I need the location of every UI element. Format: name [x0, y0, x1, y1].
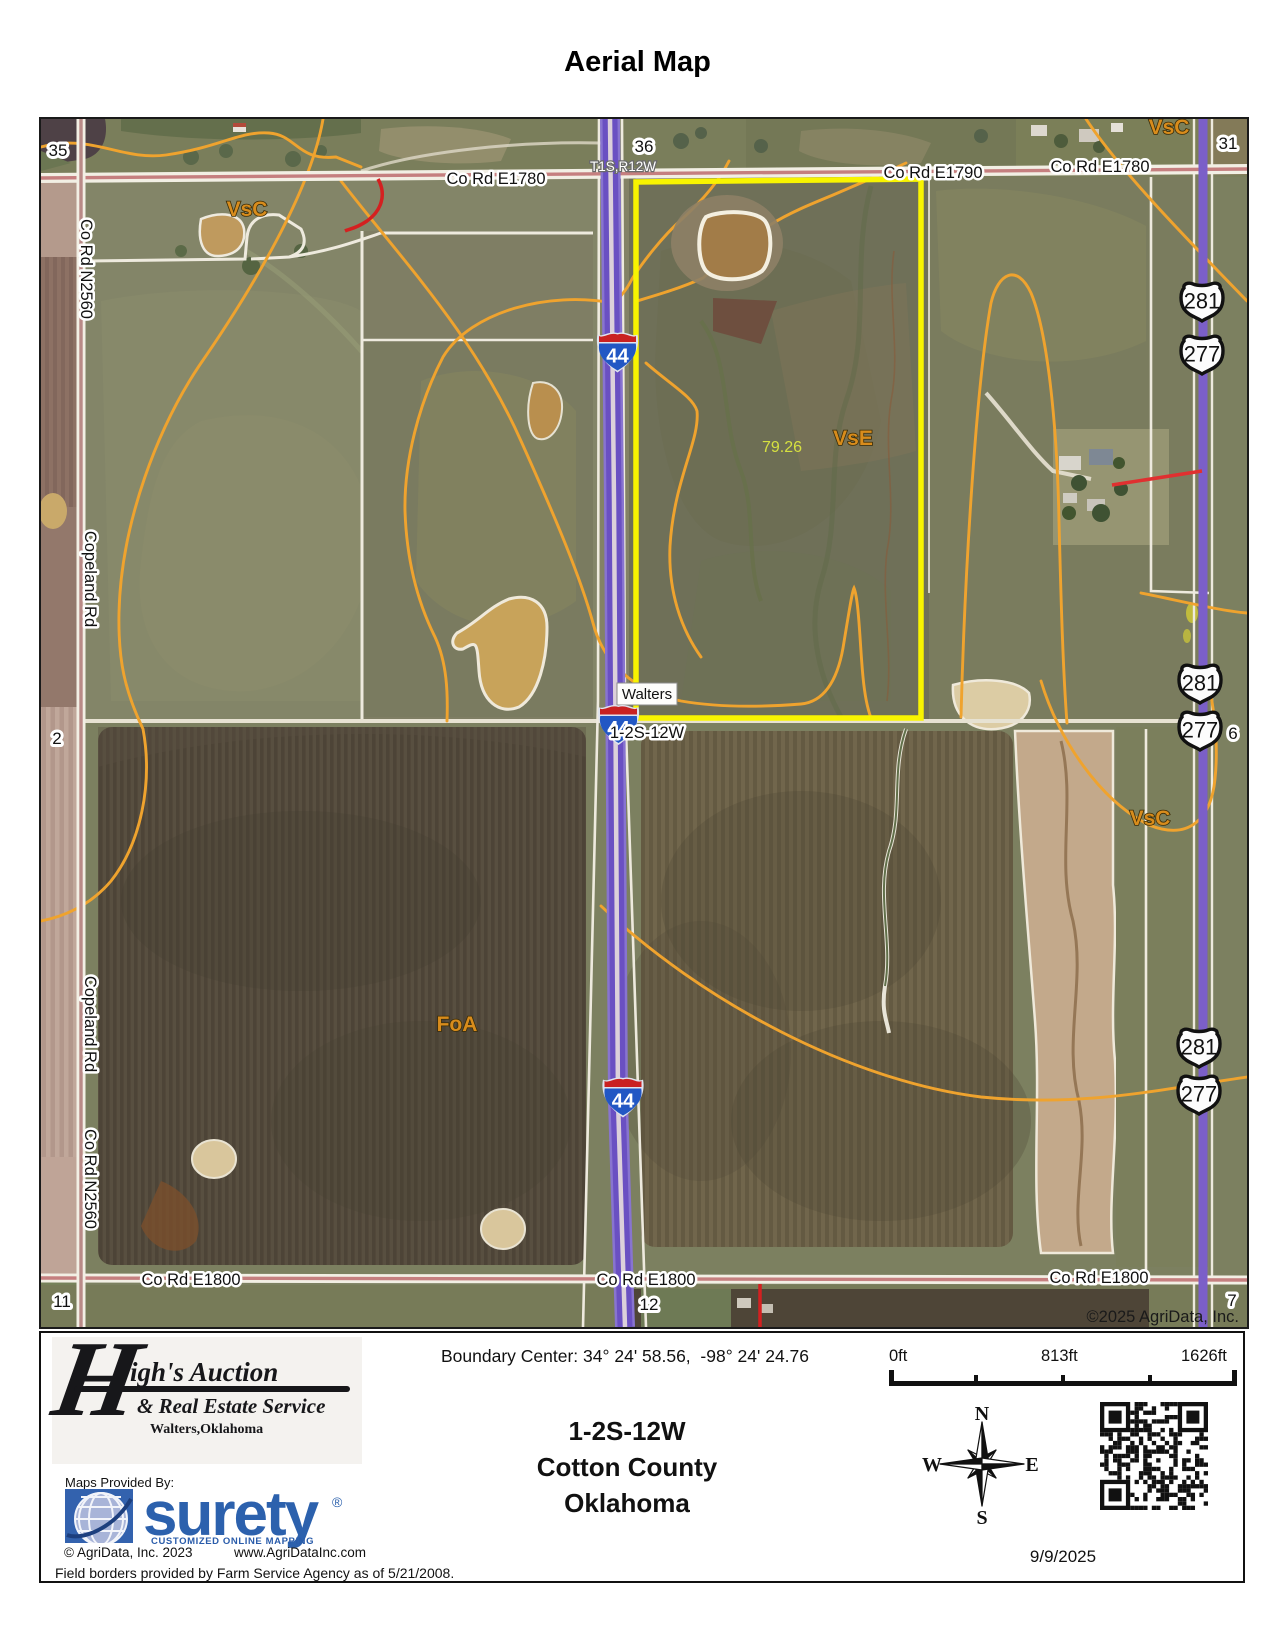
- svg-text:44: 44: [606, 345, 629, 367]
- svg-text:Co Rd E1780: Co Rd E1780: [1050, 158, 1149, 176]
- svg-text:VsE: VsE: [833, 427, 873, 450]
- svg-text:Co Rd E1800: Co Rd E1800: [141, 1271, 240, 1289]
- svg-text:W: W: [922, 1454, 942, 1476]
- svg-text:S: S: [976, 1507, 987, 1528]
- svg-text:VsC: VsC: [1149, 117, 1190, 139]
- svg-text:1-2S-12W: 1-2S-12W: [610, 724, 685, 742]
- svg-text:6: 6: [1228, 724, 1237, 743]
- svg-text:FoA: FoA: [437, 1013, 478, 1036]
- svg-text:44: 44: [612, 1090, 635, 1112]
- svg-text:12: 12: [640, 1295, 659, 1314]
- svg-text:Co Rd N2560: Co Rd N2560: [77, 219, 95, 319]
- svg-text:Copeland Rd: Copeland Rd: [81, 531, 99, 627]
- svg-text:Co Rd E1790: Co Rd E1790: [883, 164, 982, 182]
- svg-text:277: 277: [1184, 342, 1220, 367]
- svg-text:31: 31: [1219, 134, 1238, 153]
- svg-text:T1S,R12W: T1S,R12W: [590, 159, 656, 174]
- svg-text:281: 281: [1184, 289, 1220, 314]
- svg-text:Co Rd E1800: Co Rd E1800: [596, 1271, 695, 1289]
- svg-text:277: 277: [1181, 1082, 1217, 1107]
- svg-text:35: 35: [49, 141, 68, 160]
- svg-text:Walters: Walters: [622, 686, 672, 703]
- svg-text:©2025 AgriData, Inc.: ©2025 AgriData, Inc.: [1087, 1308, 1240, 1326]
- svg-text:281: 281: [1181, 1035, 1217, 1060]
- svg-text:2: 2: [52, 729, 61, 748]
- svg-text:E: E: [1025, 1454, 1038, 1476]
- svg-text:277: 277: [1182, 718, 1218, 743]
- svg-text:Copeland Rd: Copeland Rd: [81, 976, 99, 1072]
- svg-text:79.26: 79.26: [762, 439, 802, 456]
- svg-text:Co Rd E1780: Co Rd E1780: [446, 170, 545, 188]
- svg-text:VsC: VsC: [1130, 807, 1171, 830]
- svg-text:36: 36: [635, 137, 654, 156]
- svg-text:11: 11: [53, 1292, 71, 1311]
- svg-text:Co Rd N2560: Co Rd N2560: [81, 1129, 99, 1229]
- svg-text:281: 281: [1182, 671, 1218, 696]
- svg-text:VsC: VsC: [227, 198, 268, 221]
- svg-text:Co Rd E1800: Co Rd E1800: [1049, 1269, 1148, 1287]
